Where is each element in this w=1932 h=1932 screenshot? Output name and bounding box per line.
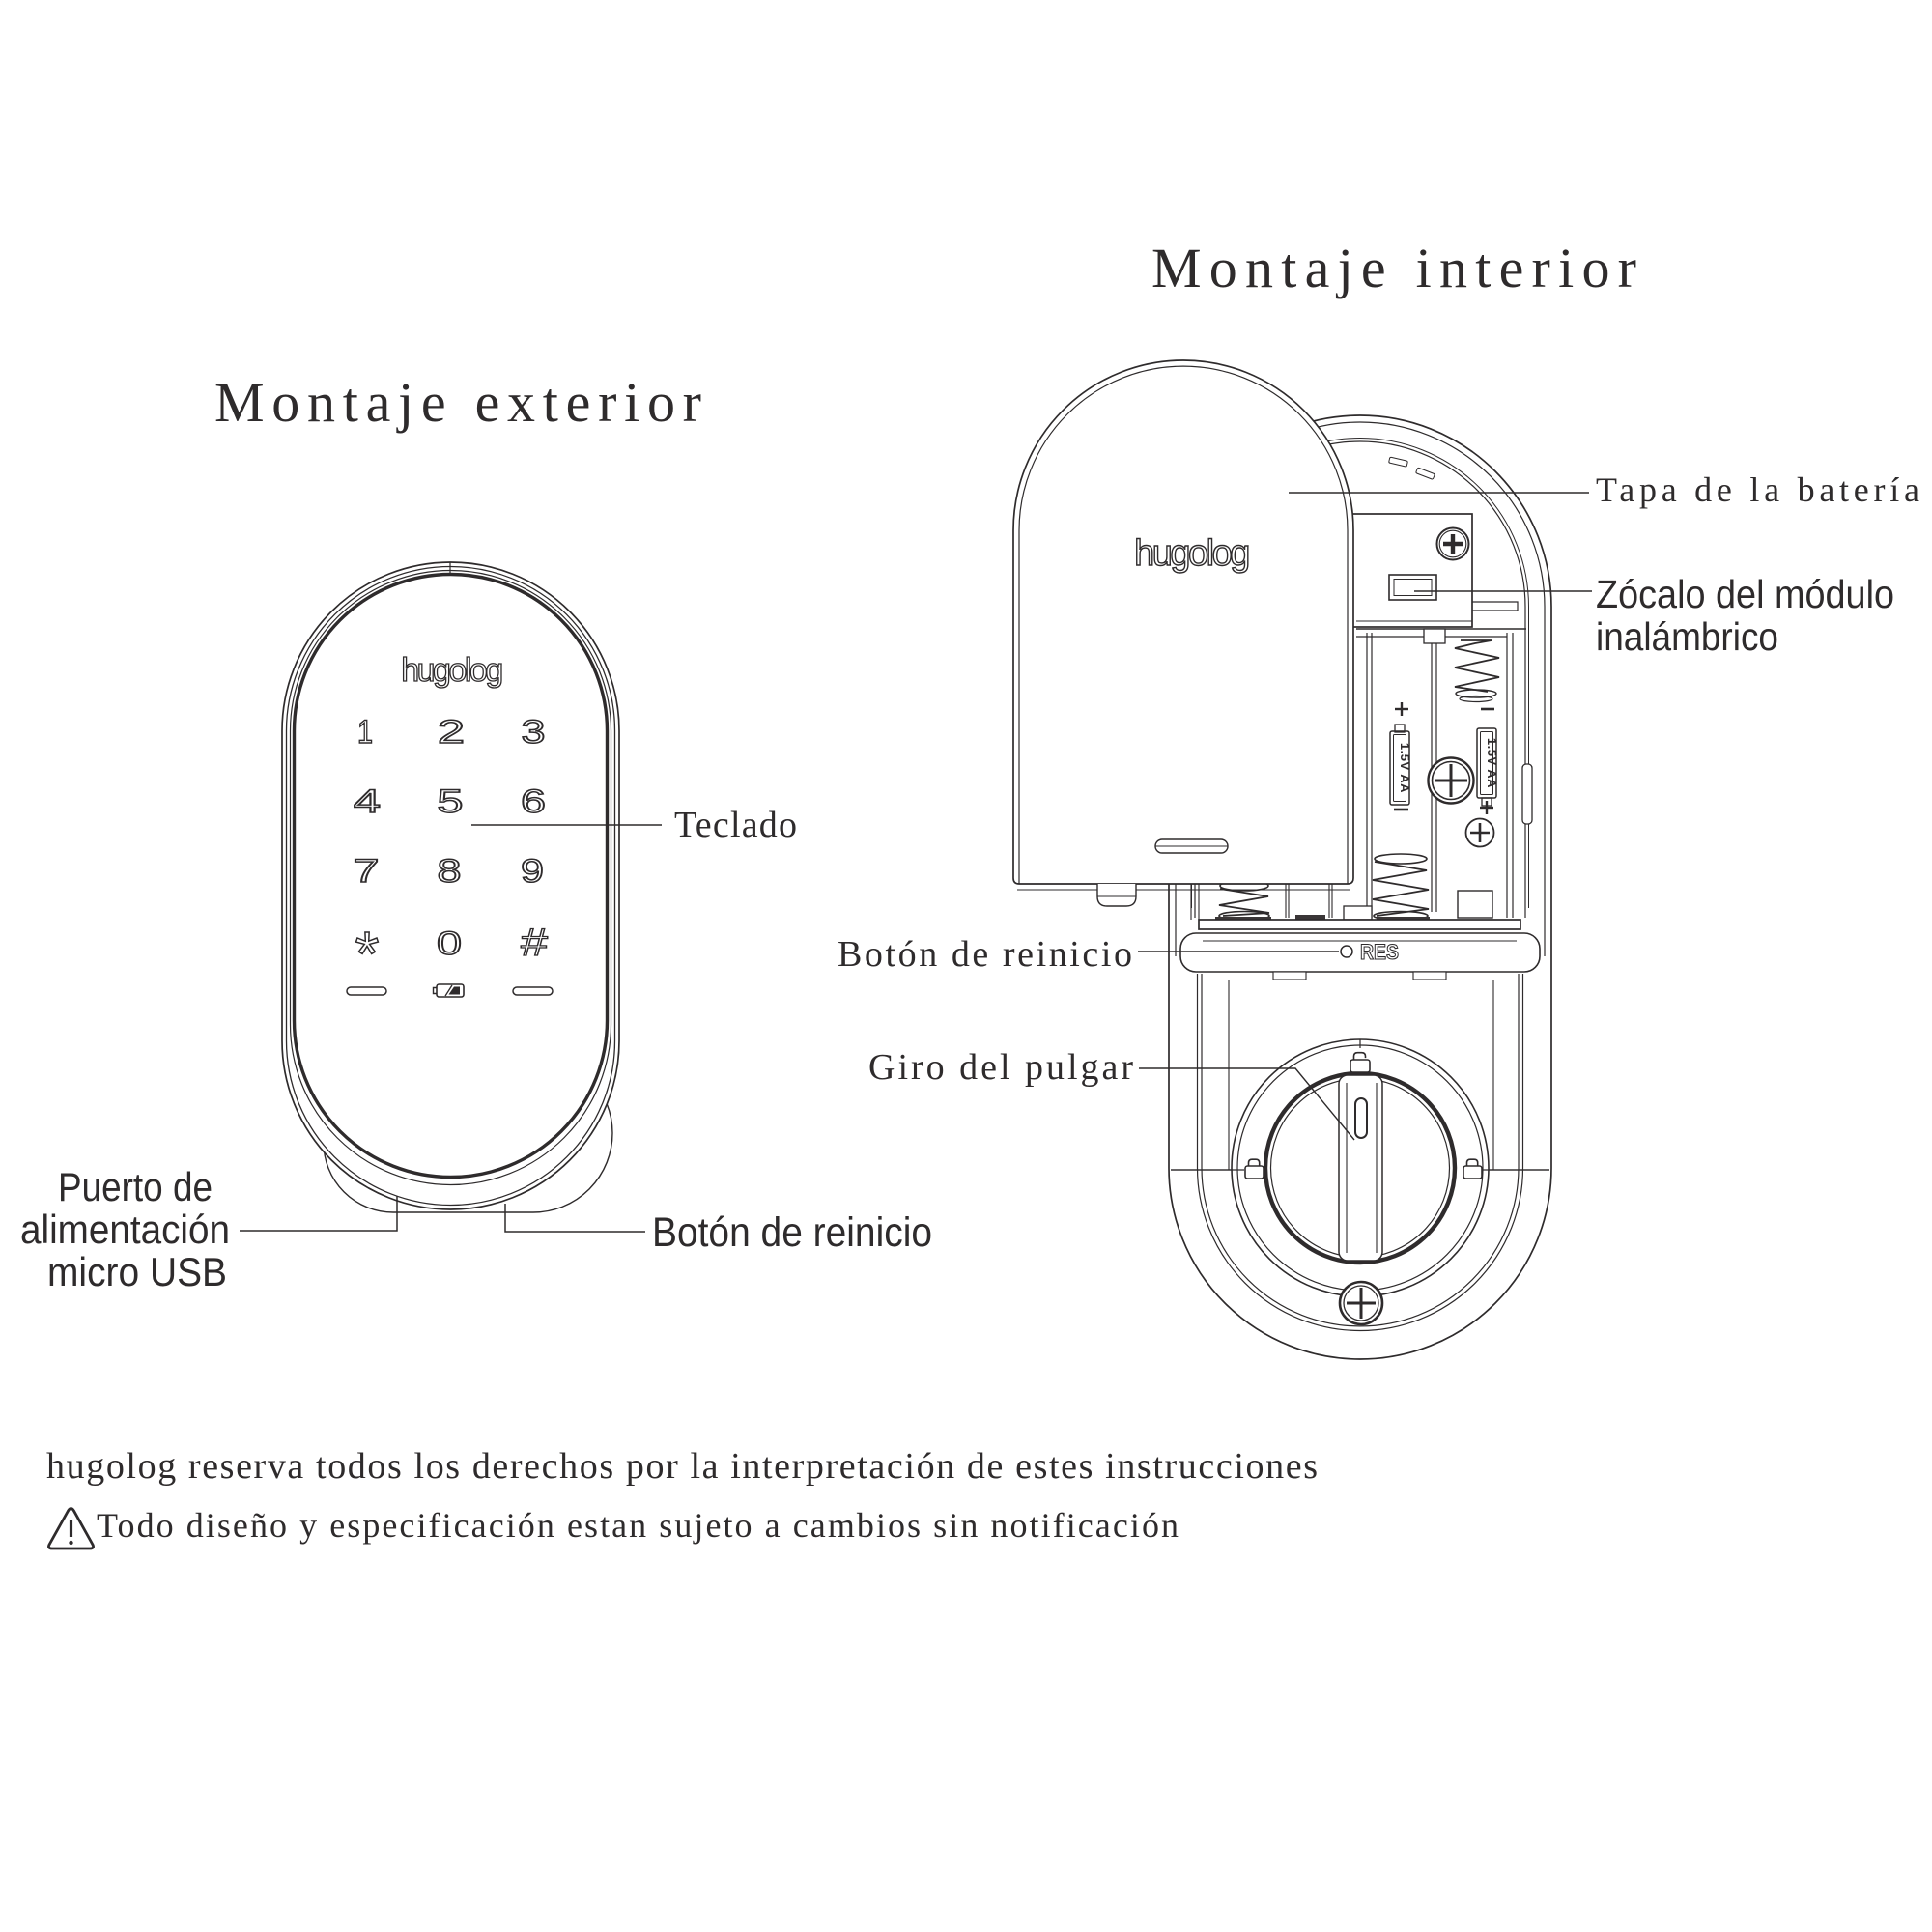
svg-text:inalámbrico: inalámbrico bbox=[1596, 614, 1778, 659]
svg-text:RES: RES bbox=[1360, 940, 1399, 964]
svg-text:hugolog: hugolog bbox=[1134, 533, 1248, 574]
svg-text:6: 6 bbox=[521, 783, 546, 820]
svg-text:hugolog: hugolog bbox=[401, 652, 501, 689]
svg-text:1: 1 bbox=[357, 714, 373, 751]
svg-text:alimentación: alimentación bbox=[20, 1207, 230, 1252]
svg-text:Puerto de: Puerto de bbox=[58, 1164, 213, 1209]
svg-text:*: * bbox=[355, 919, 380, 988]
svg-text:3: 3 bbox=[522, 714, 546, 751]
svg-text:2: 2 bbox=[438, 714, 465, 751]
svg-text:hugolog reserva todos los dere: hugolog reserva todos los derechos por l… bbox=[46, 1446, 1318, 1487]
svg-text:Botón de reinicio: Botón de reinicio bbox=[652, 1209, 932, 1256]
svg-text:5: 5 bbox=[438, 783, 464, 820]
svg-text:1.5V AA: 1.5V AA bbox=[1485, 738, 1499, 788]
svg-text:Montaje interior: Montaje interior bbox=[1151, 237, 1636, 299]
svg-text:0: 0 bbox=[437, 925, 462, 962]
svg-text:9: 9 bbox=[521, 853, 544, 890]
svg-text:1.5V AA: 1.5V AA bbox=[1398, 743, 1412, 793]
svg-text:4: 4 bbox=[354, 783, 381, 820]
svg-text:Zócalo del módulo: Zócalo del módulo bbox=[1596, 572, 1894, 616]
svg-text:micro USB: micro USB bbox=[47, 1249, 227, 1294]
svg-text:Montaje exterior: Montaje exterior bbox=[214, 371, 701, 434]
svg-text:Todo diseño y especificación e: Todo diseño y especificación estan sujet… bbox=[97, 1506, 1179, 1545]
svg-text:Botón de reinicio: Botón de reinicio bbox=[838, 934, 1132, 975]
svg-text:Teclado: Teclado bbox=[674, 805, 797, 845]
svg-text:8: 8 bbox=[438, 853, 462, 890]
svg-text:7: 7 bbox=[354, 853, 380, 890]
svg-text:#: # bbox=[521, 922, 549, 964]
